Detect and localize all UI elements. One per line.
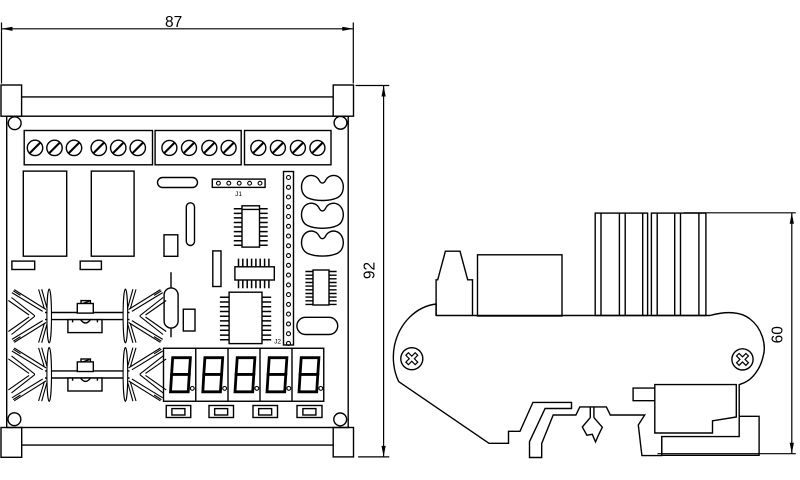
svg-text:J2: J2 <box>274 338 281 345</box>
svg-text:92: 92 <box>362 262 379 279</box>
svg-text:60: 60 <box>770 326 787 344</box>
svg-text:J1: J1 <box>235 191 242 198</box>
svg-text:87: 87 <box>165 14 182 31</box>
